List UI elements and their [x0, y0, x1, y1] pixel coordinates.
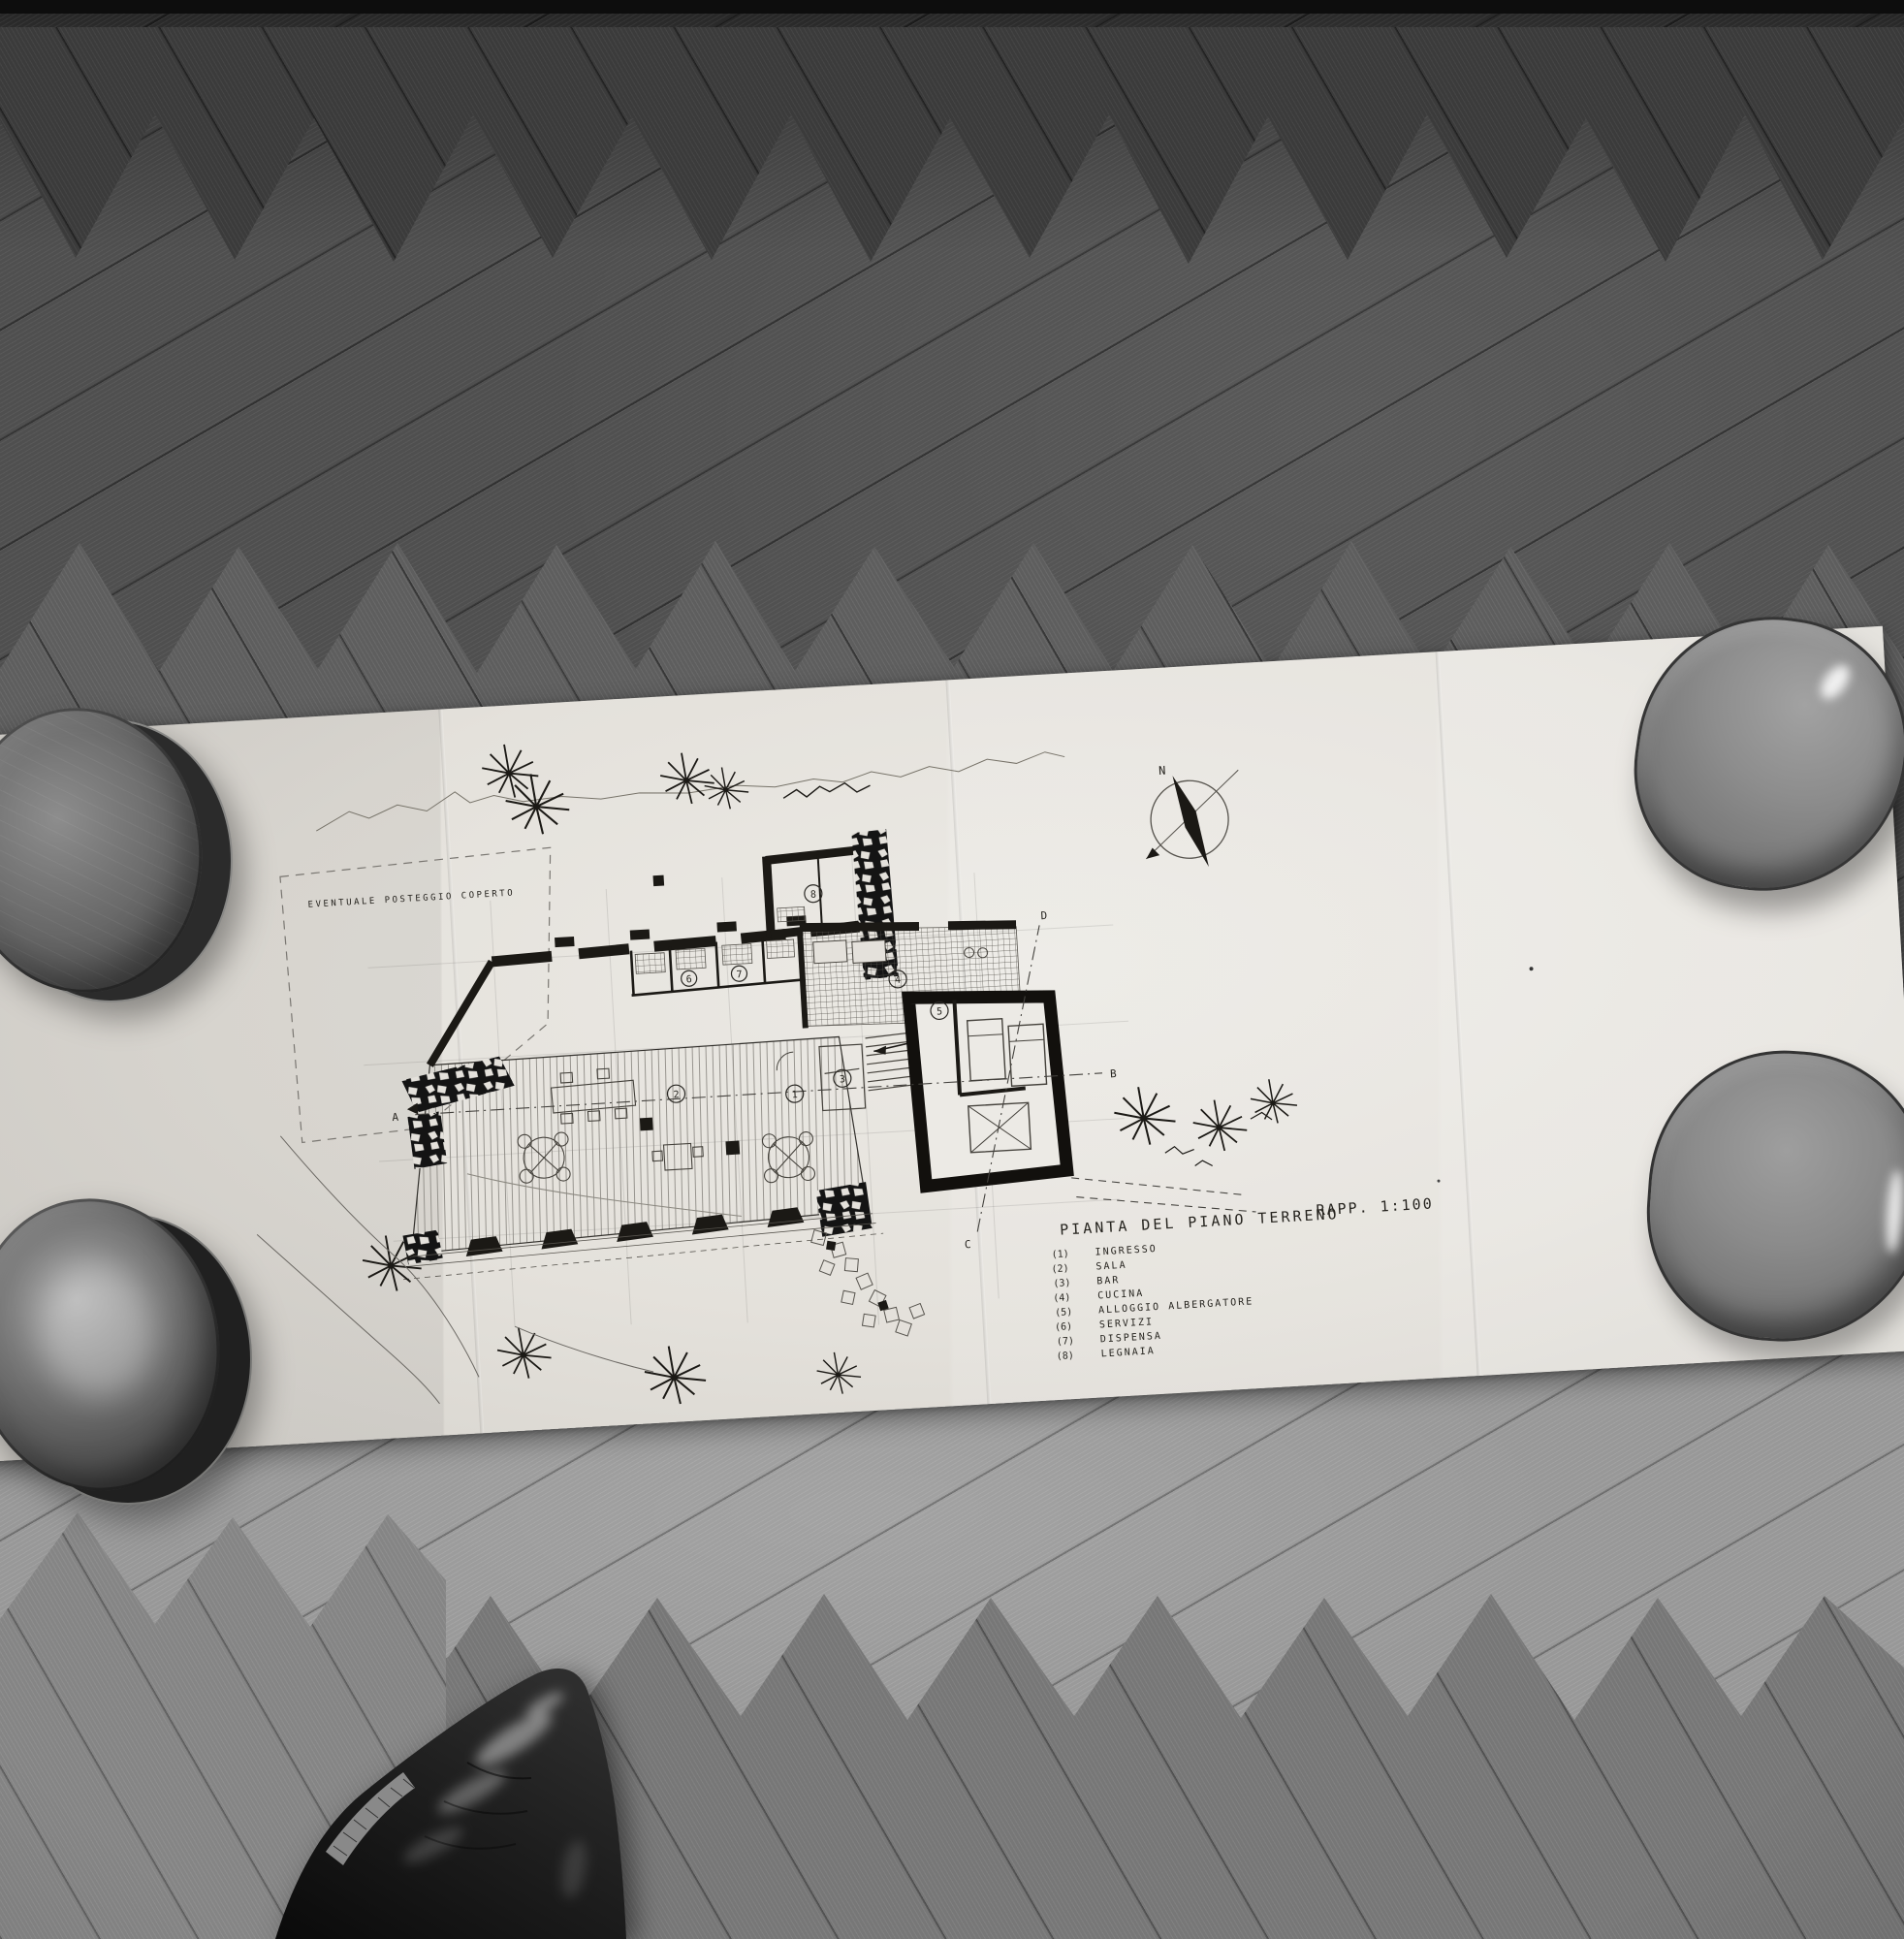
tree-icon — [816, 1351, 862, 1395]
legend-num: (6) — [1055, 1321, 1073, 1333]
compass-icon: N — [1141, 759, 1244, 871]
tree-icon — [704, 766, 749, 811]
film-edge — [0, 0, 1904, 14]
photo-scene: N EVENTUALE POSTEGGIO COPERTO — [0, 0, 1904, 1939]
site-note: EVENTUALE POSTEGGIO COPERTO — [307, 888, 515, 909]
rocks-sketch — [782, 781, 871, 798]
compass-north-label: N — [1158, 764, 1166, 778]
legend-label: CUCINA — [1097, 1288, 1145, 1302]
west-wall — [424, 962, 497, 1065]
legend-label: DISPENSA — [1100, 1331, 1163, 1346]
room-marker: 5 — [936, 1006, 943, 1017]
section-marker-d: D — [1040, 909, 1047, 922]
room-marker: 3 — [840, 1074, 846, 1085]
site-contour-treeline — [314, 751, 1066, 832]
room-marker: 1 — [791, 1090, 798, 1100]
room-marker: 7 — [736, 969, 743, 980]
room-marker: 8 — [810, 890, 817, 901]
plan-scale: RAPP. 1:100 — [1316, 1194, 1434, 1219]
tree-icon — [659, 751, 715, 806]
tree-icon — [644, 1344, 708, 1405]
tree-icon — [481, 743, 540, 799]
floor-plan-drawing: N EVENTUALE POSTEGGIO COPERTO — [230, 686, 1555, 1428]
legend-label: BAR — [1096, 1275, 1121, 1287]
tree-icon — [1191, 1098, 1248, 1153]
plan-title: PIANTA DEL PIANO TERRENO — [1060, 1205, 1340, 1239]
lodging-wing — [908, 989, 1067, 1186]
title-block: PIANTA DEL PIANO TERRENO RAPP. 1:100 — [1059, 1194, 1434, 1238]
section-marker-c: C — [965, 1238, 971, 1251]
leather-shoe — [225, 1646, 661, 1939]
rocks-sketch — [1163, 1112, 1275, 1168]
legend-num: (7) — [1057, 1336, 1075, 1348]
floor-plan-svg: N EVENTUALE POSTEGGIO COPERTO — [0, 626, 1904, 1462]
legend-num: (5) — [1055, 1307, 1073, 1319]
paper-speck — [1437, 1179, 1440, 1182]
room-marker: 2 — [673, 1090, 680, 1100]
drawing-sheet: N EVENTUALE POSTEGGIO COPERTO — [0, 626, 1904, 1462]
room-marker: 4 — [895, 975, 902, 986]
section-marker-a: A — [392, 1111, 399, 1124]
stone-wall — [407, 1111, 447, 1169]
stone-wall — [402, 1229, 443, 1264]
sala-room — [391, 1034, 884, 1279]
legend-num: (1) — [1051, 1249, 1069, 1260]
tree-icon — [1113, 1085, 1177, 1146]
stone-wall — [815, 1182, 873, 1237]
section-marker-b: B — [1110, 1067, 1118, 1080]
room-marker: 6 — [685, 974, 692, 985]
stacked-plates-top-left — [0, 708, 231, 1002]
paper-speck — [1529, 967, 1533, 970]
legend-num: (8) — [1056, 1351, 1074, 1362]
column-post — [640, 1118, 653, 1131]
legend-num: (2) — [1051, 1263, 1069, 1275]
stacked-plates-bottom-left — [0, 1198, 248, 1505]
legend-label: LEGNAIA — [1100, 1346, 1156, 1359]
legend-label: SERVIZI — [1099, 1317, 1155, 1330]
legend: (1) INGRESSO (2) SALA (3) BAR (4) CUCINA… — [1050, 1238, 1256, 1362]
column-post — [725, 1141, 740, 1156]
tree-icon — [504, 772, 570, 836]
legend-label: SALA — [1095, 1260, 1127, 1273]
legend-label: INGRESSO — [1095, 1244, 1158, 1258]
tree-icon — [496, 1326, 553, 1381]
legend-num: (4) — [1053, 1292, 1071, 1304]
legend-num: (3) — [1053, 1278, 1071, 1289]
tree-icon — [1250, 1078, 1298, 1125]
